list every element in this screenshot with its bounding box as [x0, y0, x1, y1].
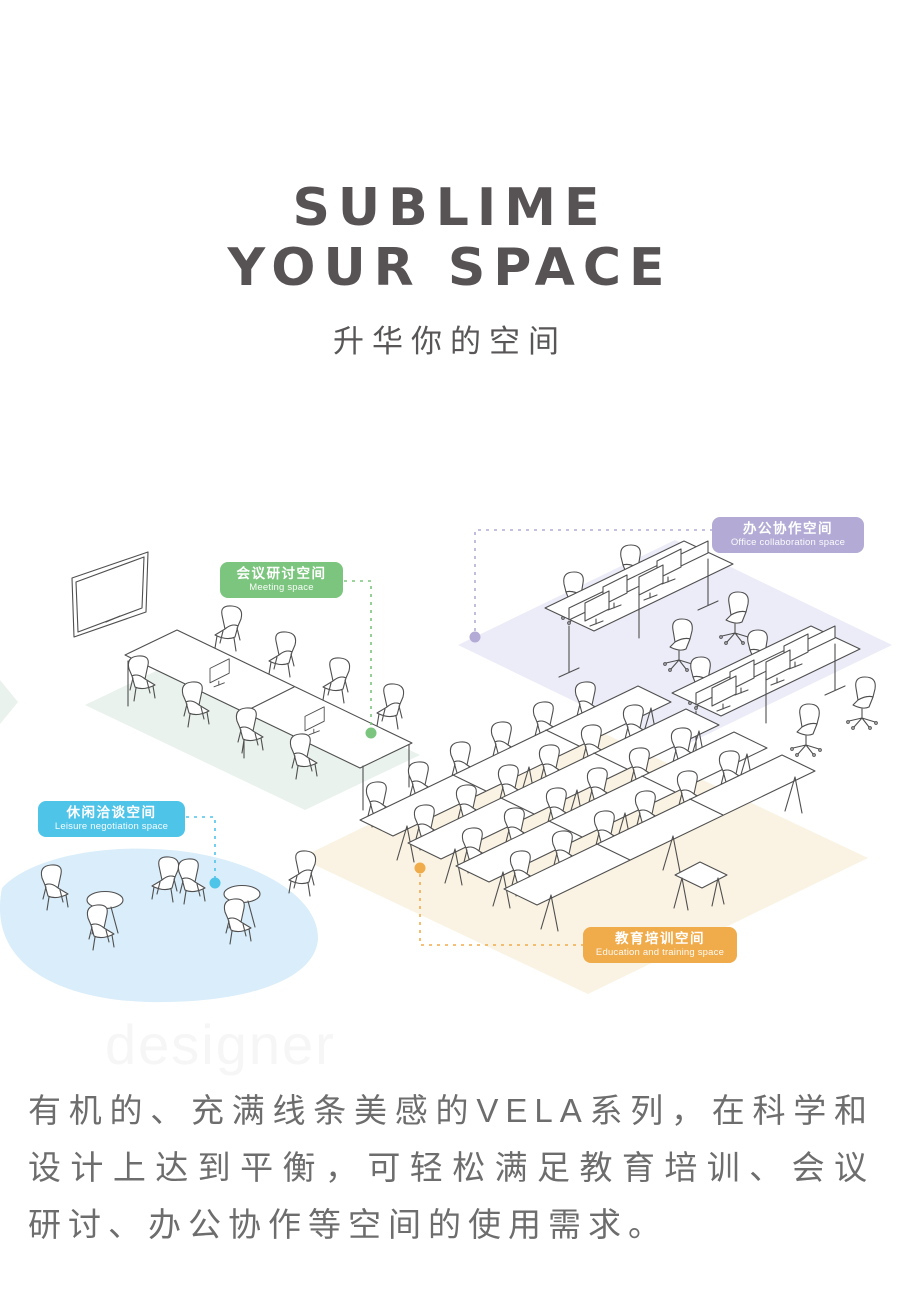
- page-title-line2: YOUR SPACE: [0, 238, 900, 298]
- isometric-office-illustration: [0, 490, 900, 1010]
- wall-screen: [72, 552, 148, 637]
- office-collaboration-label-en: Office collaboration space: [720, 537, 856, 548]
- meeting-connector-dot: [366, 728, 377, 739]
- meeting-space-label: 会议研讨空间 Meeting space: [220, 562, 343, 598]
- meeting-space-label-en: Meeting space: [228, 582, 335, 593]
- leisure-connector-dot: [210, 878, 221, 889]
- body-paragraph: 有机的、充满线条美感的VELA系列，在科学和 设计上达到平衡，可轻松满足教育培训…: [28, 1082, 874, 1253]
- body-line: 有机的、充满线条美感的VELA系列，在科学和: [28, 1082, 874, 1139]
- body-line: 研讨、办公协作等空间的使用需求。: [28, 1196, 874, 1253]
- education-training-label: 教育培训空间 Education and training space: [583, 927, 737, 963]
- body-line: 设计上达到平衡，可轻松满足教育培训、会议: [28, 1139, 874, 1196]
- education-training-label-en: Education and training space: [591, 947, 729, 958]
- leisure-negotiation-label-en: Leisure negotiation space: [46, 821, 177, 832]
- leisure-negotiation-label: 休闲洽谈空间 Leisure negotiation space: [38, 801, 185, 837]
- meeting-space-label-zh: 会议研讨空间: [228, 566, 335, 582]
- leisure-negotiation-label-zh: 休闲洽谈空间: [46, 805, 177, 821]
- office-collaboration-label: 办公协作空间 Office collaboration space: [712, 517, 864, 553]
- meeting-floor-edge-wedge: [0, 680, 18, 724]
- education-training-label-zh: 教育培训空间: [591, 931, 729, 947]
- watermark-text: designer: [105, 1012, 336, 1077]
- office-collaboration-label-zh: 办公协作空间: [720, 521, 856, 537]
- education-connector-dot: [415, 863, 426, 874]
- office-connector-dot: [470, 632, 481, 643]
- page-subtitle: 升华你的空间: [0, 316, 900, 361]
- page-title-line1: SUBLIME: [0, 178, 900, 238]
- product-detail-page: SUBLIME YOUR SPACE 升华你的空间: [0, 0, 900, 1304]
- space-scene: 会议研讨空间 Meeting space 办公协作空间 Office colla…: [0, 490, 900, 1010]
- page-title: SUBLIME YOUR SPACE: [0, 178, 900, 298]
- meeting-connector: [344, 581, 371, 728]
